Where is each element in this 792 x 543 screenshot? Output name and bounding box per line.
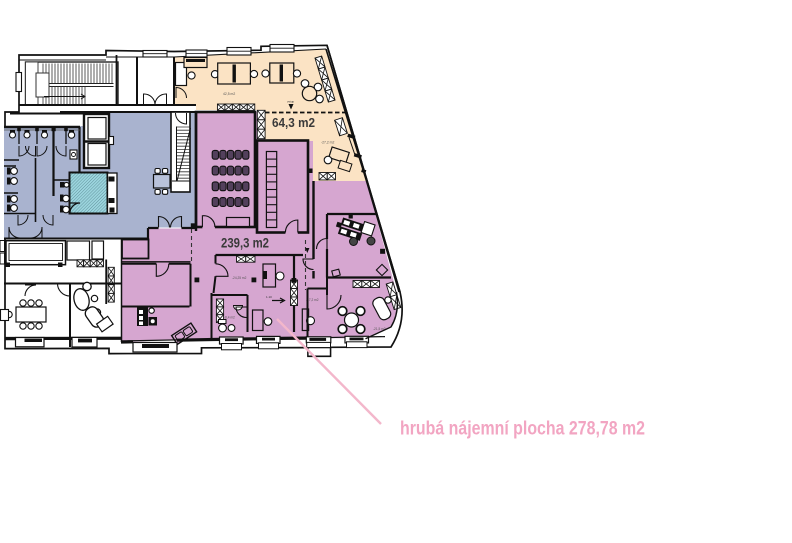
svg-text:vstup: vstup [287,100,295,104]
svg-text:-8,4 m2: -8,4 m2 [224,316,235,320]
svg-text:-27,2 m2: -27,2 m2 [321,141,334,145]
svg-text:239,3 m2: 239,3 m2 [221,236,269,251]
svg-text:hrubá nájemní plocha 278,78 m2: hrubá nájemní plocha 278,78 m2 [400,418,645,440]
svg-text:64,3 m2: 64,3 m2 [272,115,315,130]
svg-text:-24,25 m2: -24,25 m2 [232,276,247,280]
svg-text:42,5 m2: 42,5 m2 [223,92,235,96]
svg-text:1.10: 1.10 [266,295,272,299]
